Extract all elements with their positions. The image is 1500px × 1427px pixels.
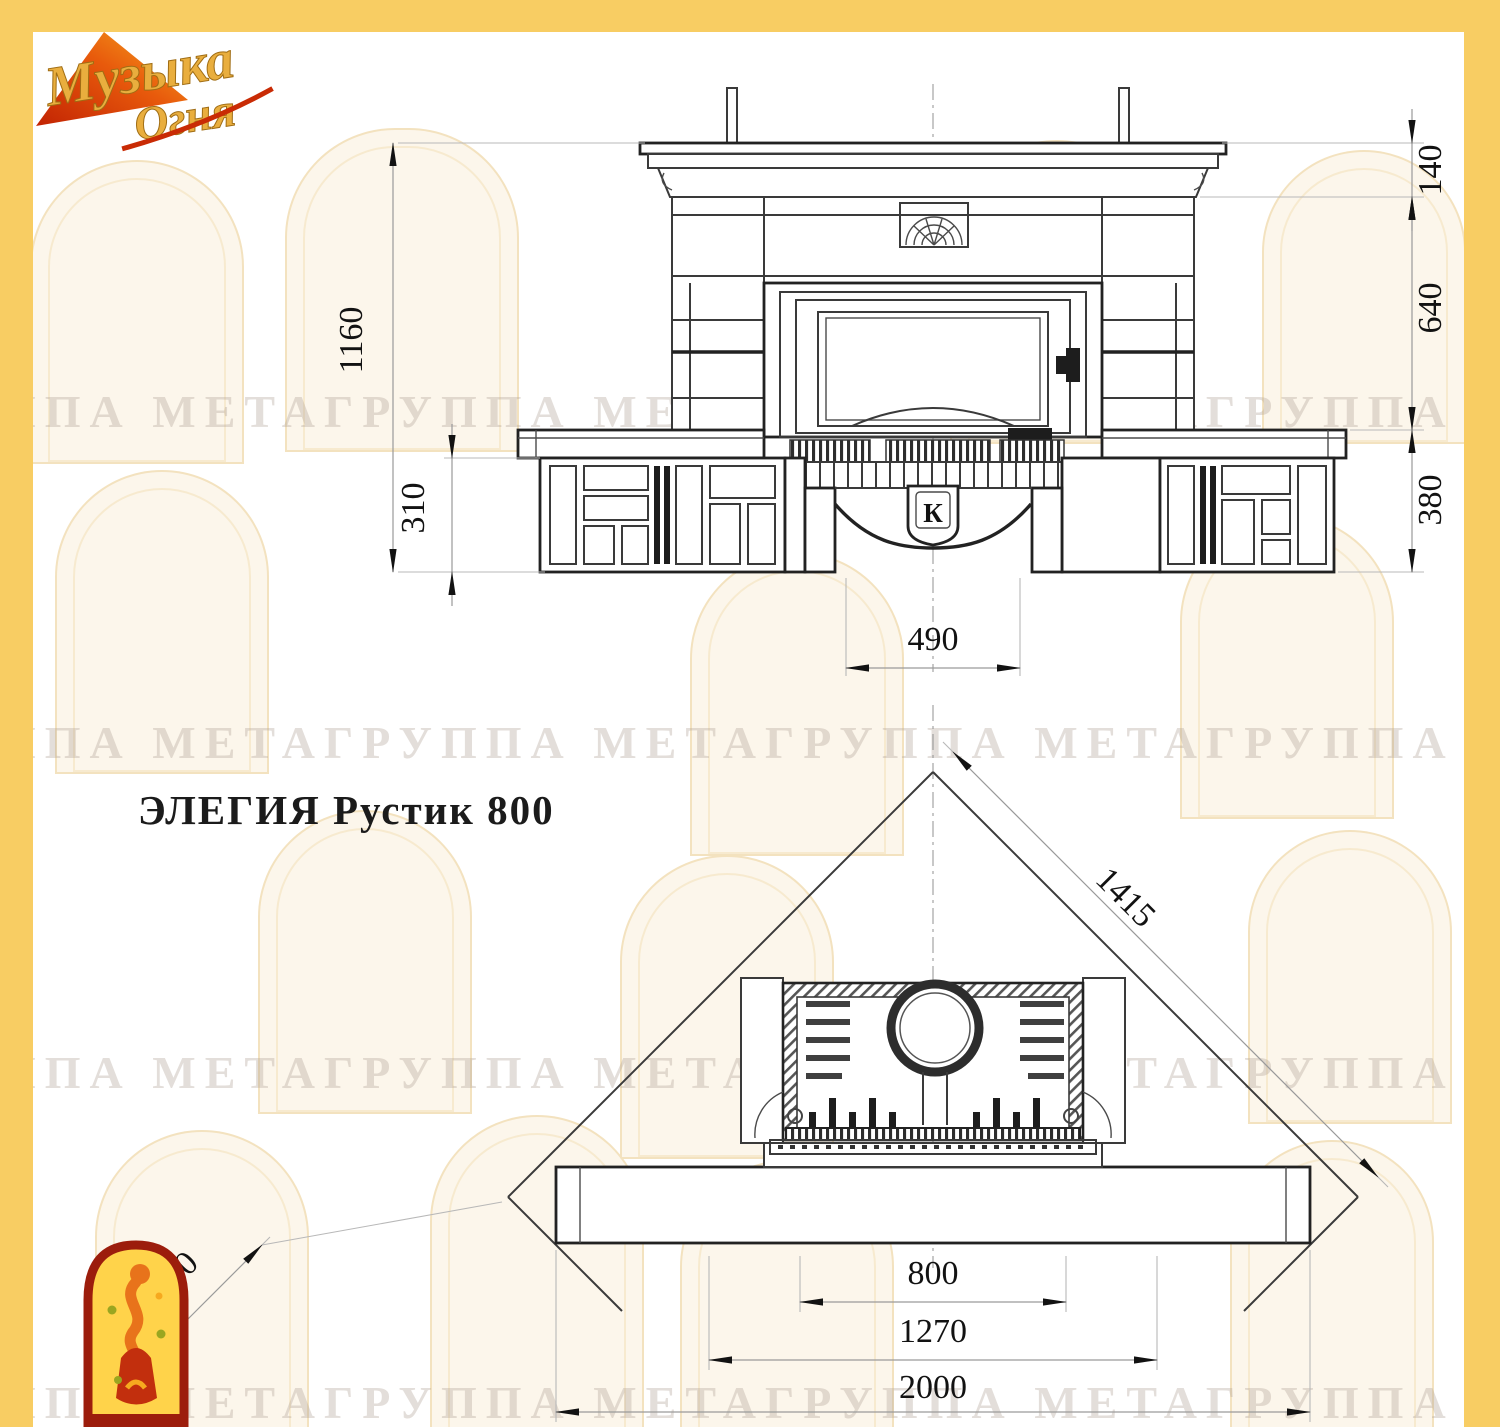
dim-firebox-width: 800 — [908, 1255, 959, 1292]
dim-overall-width: 2000 — [899, 1369, 967, 1406]
dim-bench-height: 380 — [1412, 475, 1449, 526]
dim-total-height: 1160 — [333, 307, 370, 374]
front-elevation: К — [518, 84, 1346, 672]
arch-flame-emblem — [83, 1238, 189, 1427]
technical-drawing: К 1160 310 490 140 640 — [0, 0, 1500, 1427]
drawing-sheet: ППА МЕТАГРУППА МЕТАГРУППА МЕТАГРУППА МЕТ… — [0, 0, 1500, 1427]
dim-base-opening: 490 — [908, 621, 959, 658]
dim-middle-height: 640 — [1412, 283, 1449, 334]
dim-mantel-height: 140 — [1412, 145, 1449, 196]
dim-bench-front-height: 310 — [395, 483, 432, 534]
plan-view — [508, 705, 1358, 1311]
dim-inner-width: 1270 — [899, 1313, 967, 1350]
brand-logo: Музыка Огня — [8, 2, 288, 157]
page-title: ЭЛЕГИЯ Рустик 800 — [138, 786, 555, 834]
dim-diagonal-wall: 1415 — [1088, 860, 1162, 934]
firebox-emblem: К — [923, 498, 943, 528]
frame-left-band — [0, 32, 33, 1427]
frame-right-band — [1464, 32, 1500, 1427]
